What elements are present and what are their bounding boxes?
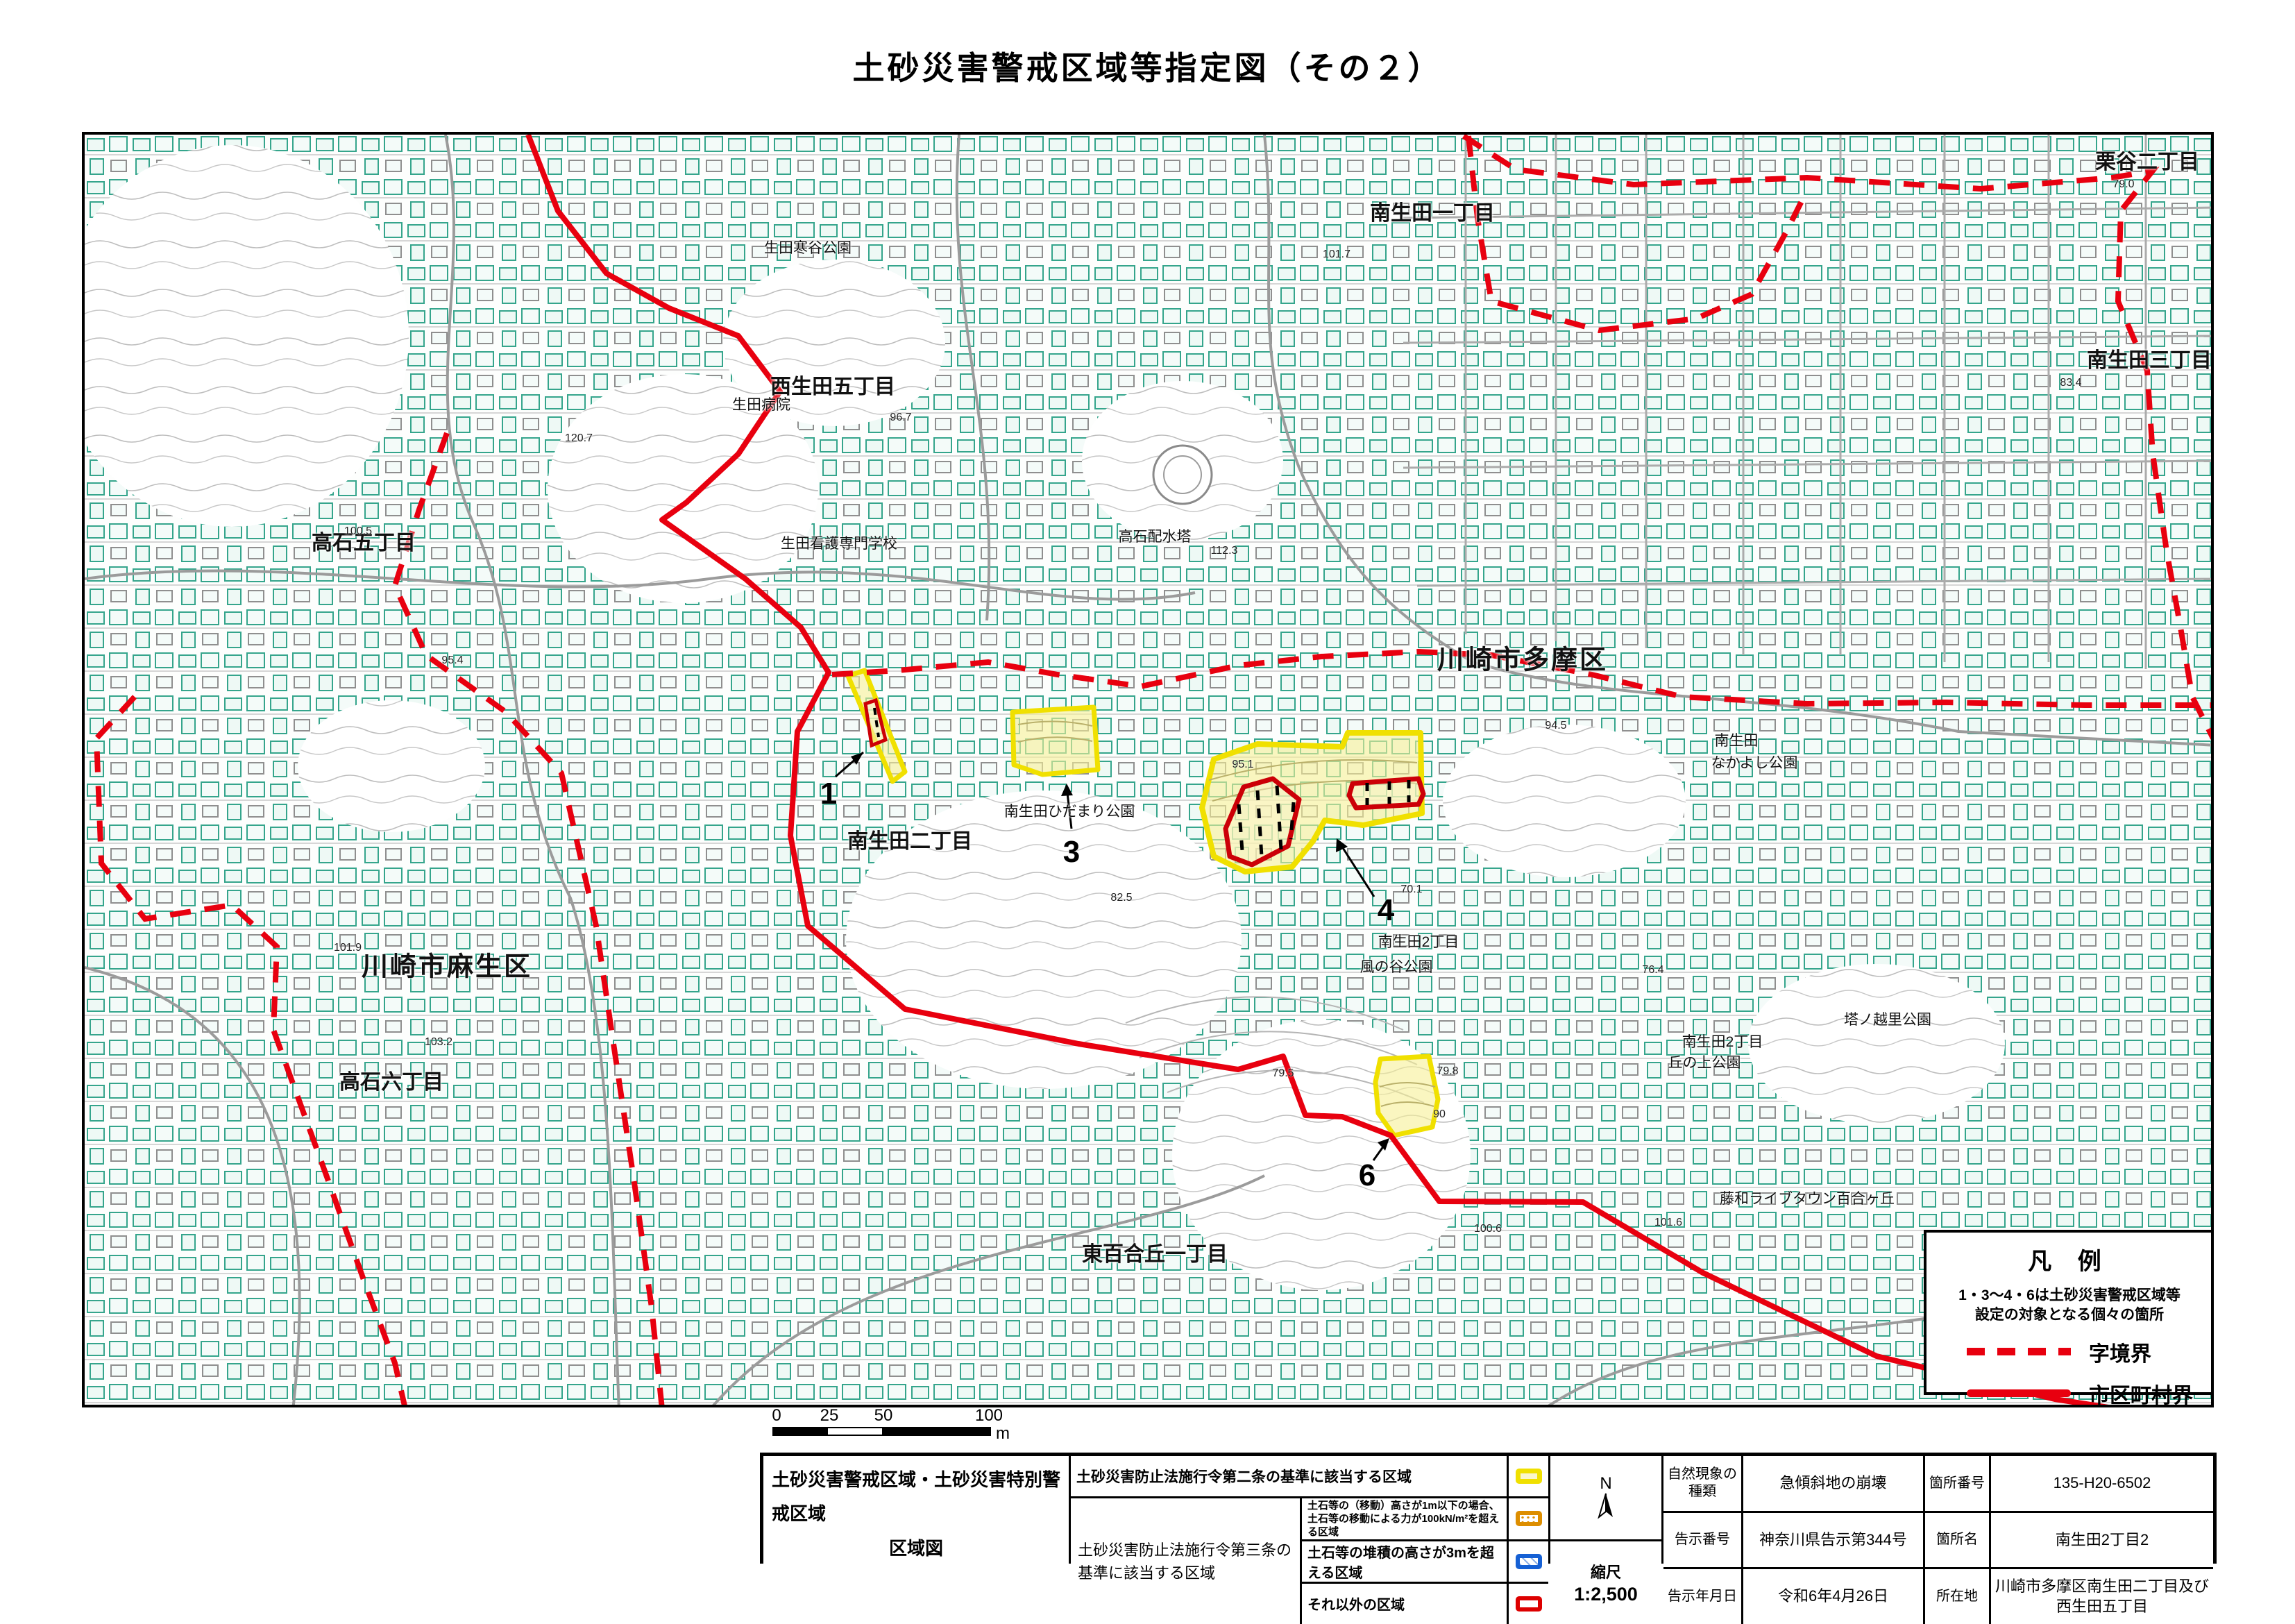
site-no-label: 箇所番号 <box>1925 1456 1989 1511</box>
region-label: 栗谷二丁目 <box>2095 144 2199 175</box>
notice-date-value: 令和6年4月26日 <box>1743 1569 1923 1624</box>
swatch-cell <box>1509 1498 1548 1539</box>
page: { "page": { "title": "土砂災害警戒区域等指定図（その２）"… <box>0 0 2295 1623</box>
elevation-label: 101.7 <box>1323 248 1350 261</box>
compass-n-label: N <box>1600 1475 1611 1492</box>
elevation-label: 101.6 <box>1654 1217 1682 1229</box>
hazard-zone-site6 <box>1375 1056 1438 1135</box>
map-canvas <box>85 135 2214 1407</box>
zone-desc-row2-line1: 土石等の（移動）高さが1m以下の場合、 <box>1307 1500 1500 1512</box>
facility-label: 生田看護専門学校 <box>781 532 897 553</box>
dashed-line-sample <box>1967 1348 2071 1355</box>
map-sheet-title-line1: 土砂災害警戒区域・土砂災害特別警戒区域 <box>772 1463 1060 1532</box>
legend-title: 凡 例 <box>1935 1242 2204 1276</box>
region-label: 南生田三丁目 <box>2087 343 2212 373</box>
map-frame: 南生田一丁目 栗谷二丁目 南生田三丁目 西生田五丁目 高石五丁目 川崎市多摩区 … <box>82 132 2214 1407</box>
scale-bar-strip <box>772 1427 991 1436</box>
elevation-label: 82.5 <box>1110 892 1132 904</box>
scale-unit: m <box>996 1424 1010 1444</box>
blue-hatched-swatch <box>1516 1554 1542 1569</box>
region-label: 東百合丘一丁目 <box>1082 1237 1228 1267</box>
legend-row-aza: 字境界 <box>1967 1337 2204 1367</box>
facility-label: 南生田2丁目 <box>1682 1031 1763 1051</box>
facility-label: 生田病院 <box>732 394 790 414</box>
article2-zone-label: 土砂災害防止法施行令第二条の基準に該当する区域 <box>1071 1456 1507 1496</box>
legend-note-line2: 設定の対象となる個々の箇所 <box>1975 1307 2164 1323</box>
scale-tick: 0 <box>772 1406 781 1426</box>
facility-label: 生田寒谷公園 <box>764 237 852 257</box>
site-no-value: 135-H20-6502 <box>1991 1456 2213 1511</box>
elevation-label: 79.0 <box>2112 178 2134 191</box>
facility-label: 南生田2丁目 <box>1378 931 1459 951</box>
scale-segment <box>774 1428 828 1435</box>
zone-desc-row2: 土石等の（移動）高さが1m以下の場合、 土石等の移動による力が100kN/m²を… <box>1302 1498 1507 1539</box>
facility-label: 南生田ひだまり公園 <box>1004 800 1135 821</box>
elevation-label: 94.5 <box>1545 720 1566 732</box>
page-title: 土砂災害警戒区域等指定図（その２） <box>853 43 1443 89</box>
elevation-label: 120.7 <box>565 432 593 445</box>
map-legend: 凡 例 1・3～4・6は土砂災害警戒区域等 設定の対象となる個々の箇所 字境界 … <box>1924 1230 2214 1395</box>
scale-bar: 0 25 50 100 m <box>772 1406 1022 1445</box>
region-label: 南生田一丁目 <box>1370 196 1495 226</box>
elevation-label: 100.6 <box>1474 1223 1502 1235</box>
swatch-cell <box>1509 1541 1548 1582</box>
elevation-label: 96.7 <box>890 412 911 424</box>
site-number: 6 <box>1359 1158 1375 1193</box>
legend-note: 1・3～4・6は土砂災害警戒区域等 設定の対象となる個々の箇所 <box>1935 1286 2204 1326</box>
elevation-label: 95.4 <box>441 654 463 667</box>
legend-solid-label: 市区町村界 <box>2089 1378 2193 1407</box>
solid-line-sample <box>1967 1389 2071 1397</box>
elevation-label: 76.4 <box>1642 964 1663 976</box>
site-number: 4 <box>1378 893 1394 928</box>
swatch-cell <box>1509 1456 1548 1496</box>
elevation-label: 79.8 <box>1437 1065 1458 1078</box>
info-table: 土砂災害警戒区域・土砂災害特別警戒区域 区域図 土砂災害防止法施行令第二条の基準… <box>760 1453 2217 1564</box>
north-arrow-icon <box>1594 1492 1618 1520</box>
site-number: 1 <box>820 777 837 811</box>
region-label: 川崎市麻生区 <box>362 945 532 983</box>
site-name-value: 南生田2丁目2 <box>1991 1513 2213 1568</box>
scale-value: 1:2,500 <box>1574 1584 1638 1605</box>
zone-desc-row2-line2: 土石等の移動による力が100kN/m²を超える区域 <box>1307 1513 1499 1538</box>
scale-segment <box>828 1428 882 1435</box>
facility-label: 南生田 <box>1715 729 1759 750</box>
zone-desc-row3: 土石等の堆積の高さが3mを超える区域 <box>1302 1541 1507 1582</box>
facility-label: 風の谷公園 <box>1360 956 1433 976</box>
location-label: 所在地 <box>1925 1569 1989 1624</box>
region-label: 南生田二丁目 <box>847 824 972 854</box>
compass-scale-column: N 縮尺 1:2,500 <box>1550 1456 1661 1624</box>
elevation-label: 101.9 <box>334 942 362 954</box>
scale-cell: 縮尺 1:2,500 <box>1550 1541 1661 1624</box>
site-name-label: 箇所名 <box>1925 1513 1989 1568</box>
scale-segment <box>882 1428 990 1435</box>
elevation-label: 103.2 <box>425 1036 452 1049</box>
elevation-label: 70.1 <box>1400 883 1422 896</box>
article3-zone-label: 土砂災害防止法施行令第三条の基準に該当する区域 <box>1071 1498 1300 1624</box>
notice-no-label: 告示番号 <box>1663 1513 1741 1568</box>
facility-label: なかよし公園 <box>1711 752 1798 772</box>
region-label: 高石六丁目 <box>339 1065 443 1095</box>
scale-label: 縮尺 <box>1591 1560 1621 1582</box>
elevation-label: 112.3 <box>1211 545 1238 557</box>
legend-dashed-label: 字境界 <box>2089 1337 2151 1367</box>
map-sheet-title: 土砂災害警戒区域・土砂災害特別警戒区域 区域図 <box>763 1456 1069 1624</box>
nature-label: 自然現象の種類 <box>1663 1456 1741 1511</box>
elevation-label: 90 <box>1433 1108 1446 1121</box>
notice-date-label: 告示年月日 <box>1663 1569 1741 1624</box>
compass-cell: N <box>1550 1456 1661 1539</box>
notice-no-value: 神奈川県告示第344号 <box>1743 1513 1923 1568</box>
region-label: 川崎市多摩区 <box>1437 638 1608 677</box>
site-number: 3 <box>1063 835 1080 870</box>
map-sheet-title-line2: 区域図 <box>889 1532 943 1566</box>
zone-classification-grid: 土砂災害防止法施行令第二条の基準に該当する区域 土砂災害防止法施行令第三条の基準… <box>1071 1456 1548 1624</box>
facility-label: 塔ノ越里公園 <box>1844 1008 1931 1029</box>
designation-info-grid: 自然現象の種類 急傾斜地の崩壊 箇所番号 135-H20-6502 告示番号 神… <box>1663 1456 2213 1624</box>
facility-label: 高石配水塔 <box>1119 525 1192 546</box>
facility-label: 丘の上公園 <box>1668 1051 1741 1072</box>
scale-tick: 50 <box>874 1406 893 1426</box>
facility-label: 藤和ライブタウン百合ヶ丘 <box>1720 1187 1895 1208</box>
nature-value: 急傾斜地の崩壊 <box>1743 1456 1923 1511</box>
orange-dotted-swatch <box>1516 1511 1542 1526</box>
red-outline-swatch <box>1516 1596 1542 1612</box>
scale-tick: 25 <box>820 1406 839 1426</box>
elevation-label: 83.4 <box>2060 377 2081 389</box>
hazard-zone-site3 <box>1013 707 1098 775</box>
yellow-zone-swatch <box>1516 1469 1542 1484</box>
elevation-label: 79.5 <box>1272 1067 1294 1080</box>
zone-desc-row4: それ以外の区域 <box>1302 1584 1507 1624</box>
scale-tick: 100 <box>975 1406 1003 1426</box>
swatch-cell <box>1509 1584 1548 1624</box>
location-value: 川崎市多摩区南生田二丁目及び西生田五丁目 <box>1991 1569 2213 1624</box>
legend-row-municipal: 市区町村界 <box>1967 1378 2204 1407</box>
legend-note-line1: 1・3～4・6は土砂災害警戒区域等 <box>1958 1287 2180 1303</box>
elevation-label: 100.5 <box>344 525 372 538</box>
elevation-label: 95.1 <box>1232 759 1253 771</box>
